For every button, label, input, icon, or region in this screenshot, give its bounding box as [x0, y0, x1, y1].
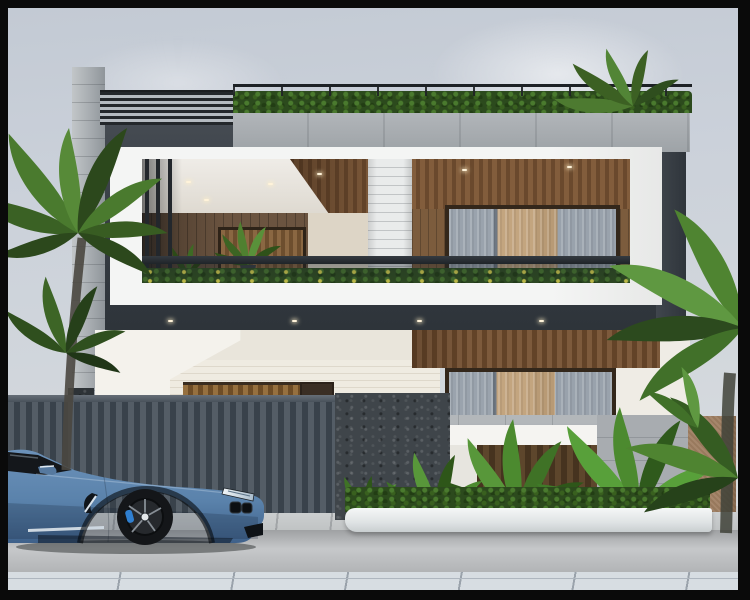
ceiling-light — [186, 181, 191, 183]
ceiling-light — [317, 173, 322, 175]
balcony-opening — [142, 159, 630, 283]
palm-tree-left — [8, 98, 168, 438]
soffit-light — [539, 320, 544, 322]
foreground-pavers — [8, 572, 738, 590]
glass-balustrade — [142, 263, 630, 283]
balustrade-handrail — [142, 256, 630, 264]
soffit-light — [168, 320, 173, 322]
scene: HOUSE NO. — [8, 8, 738, 590]
soffit-light — [417, 320, 422, 322]
ceiling-light — [462, 169, 467, 171]
palm-fronds-rooftop — [528, 48, 688, 128]
soffit-light — [292, 320, 297, 322]
ceiling-light — [567, 166, 572, 168]
kidney-grille — [242, 503, 252, 513]
framed-render: HOUSE NO. — [0, 0, 750, 600]
blue-coupe-car — [8, 443, 278, 558]
front-wheel — [117, 489, 173, 545]
kidney-grille — [230, 502, 241, 513]
palm-tree-right — [636, 233, 738, 533]
palm-crown — [8, 123, 168, 284]
ceiling-light — [204, 199, 209, 201]
palm-crown — [553, 46, 681, 120]
mirror-highlight — [40, 466, 54, 467]
ceiling-light — [268, 183, 273, 185]
